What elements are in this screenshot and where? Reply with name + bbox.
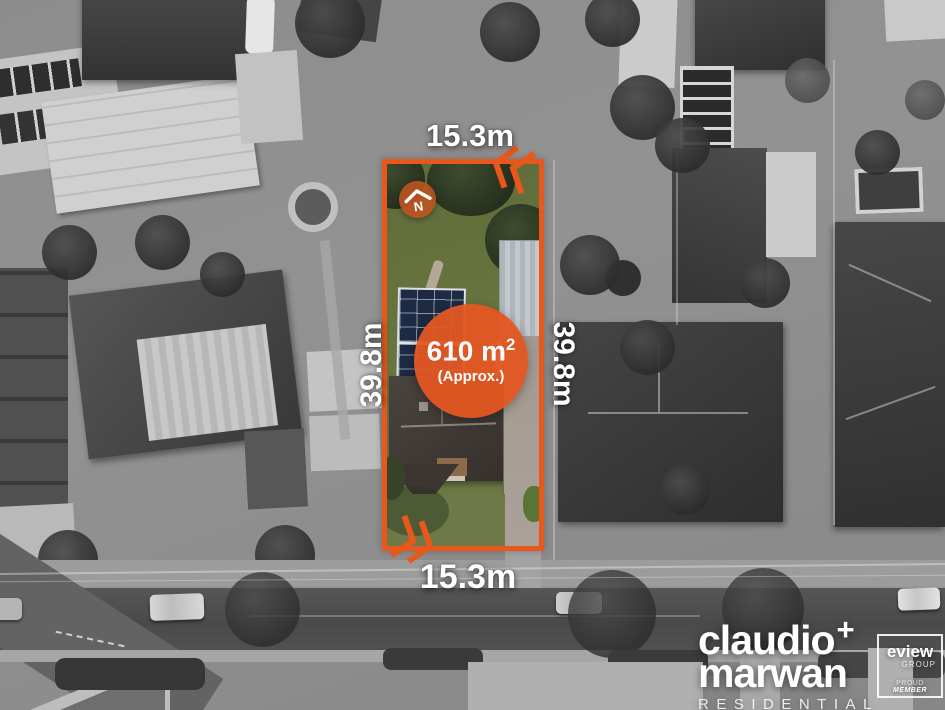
tree xyxy=(655,118,710,173)
plus-icon: + xyxy=(837,612,854,647)
tree xyxy=(135,215,190,270)
tree xyxy=(660,465,710,515)
tree xyxy=(855,130,900,175)
neighbor-roof-dark xyxy=(82,0,257,80)
area-value: 610 m2 xyxy=(427,337,516,365)
pool xyxy=(288,182,338,232)
roof-ridge xyxy=(848,264,931,302)
agency-name-line2: marwan xyxy=(698,657,879,690)
car xyxy=(898,587,941,610)
area-approx: (Approx.) xyxy=(438,368,505,385)
concrete-pad xyxy=(468,662,703,710)
partner-member: PROUD MEMBER xyxy=(879,680,941,694)
pool-frame xyxy=(854,167,924,214)
north-label: N xyxy=(413,199,424,213)
aerial-photo: 15.3m 15.3m 39.8m 39.8m 610 m2 (Approx.)… xyxy=(0,0,945,710)
partner-group: GROUP xyxy=(879,660,941,669)
agency-descriptor: RESIDENTIAL xyxy=(698,696,879,710)
neighbor-garage xyxy=(766,152,816,257)
tree xyxy=(295,0,365,58)
tree xyxy=(560,235,620,295)
roof-ridge xyxy=(846,386,936,420)
caravan xyxy=(245,0,275,54)
tree xyxy=(42,225,97,280)
neighbor-terrace-roof xyxy=(0,268,68,523)
tree xyxy=(905,80,945,120)
fence-line xyxy=(676,150,678,325)
tree xyxy=(620,320,675,375)
neighbor-shed xyxy=(235,50,303,144)
street-tree xyxy=(568,570,656,658)
partner-name: eview xyxy=(879,643,941,660)
car xyxy=(150,593,205,621)
neighbor-roof-light xyxy=(884,0,945,42)
car xyxy=(0,598,22,620)
tree xyxy=(740,258,790,308)
neighbor-house-far-right xyxy=(835,222,945,527)
dimension-label-bottom: 15.3m xyxy=(358,558,578,597)
tree xyxy=(480,2,540,62)
dimension-label-right: 39.8m xyxy=(546,314,580,414)
solar-panel-gray xyxy=(0,58,82,98)
agency-logo: claudio+ marwan RESIDENTIAL xyxy=(698,618,879,710)
dimension-label-top: 15.3m xyxy=(360,118,580,154)
neighbor-shed-dark xyxy=(244,428,308,509)
fence-line xyxy=(833,60,835,525)
partner-logo: eview GROUP PROUD MEMBER xyxy=(877,634,943,698)
area-badge: 610 m2 (Approx.) xyxy=(414,304,528,418)
tree xyxy=(785,58,830,103)
roof-ridge xyxy=(588,412,748,414)
metal-roof-gray xyxy=(137,324,278,441)
hedge xyxy=(55,658,205,690)
dimension-label-left: 39.8m xyxy=(355,315,389,415)
tree xyxy=(200,252,245,297)
street-tree xyxy=(225,572,300,647)
